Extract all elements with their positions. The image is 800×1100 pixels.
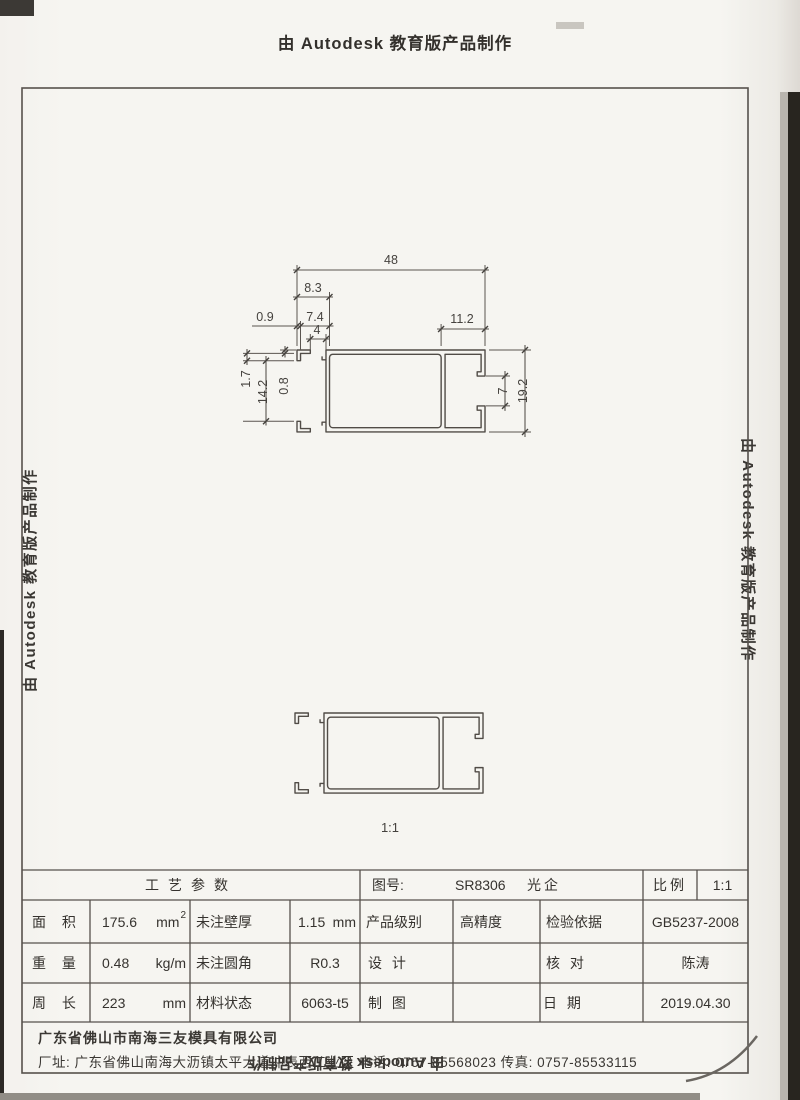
dim-4: 4	[306, 323, 328, 337]
weight-value: 0.48kg/m	[102, 943, 186, 983]
date-value: 2019.04.30	[643, 983, 748, 1022]
company-name: 广东省佛山市南海三友模具有限公司	[38, 1028, 278, 1048]
product-name: 光企	[527, 870, 587, 900]
dim-14-2: 14.2	[256, 370, 270, 414]
perimeter-label: 周 长	[32, 983, 90, 1022]
dim-19-2: 19.2	[516, 368, 530, 414]
dim-8-3: 8.3	[295, 281, 331, 295]
wall-thickness-value: 1.15mm	[298, 900, 356, 943]
area-label: 面 积	[32, 900, 90, 943]
page-curl-mark	[686, 1036, 757, 1081]
wall-thickness-label: 未注壁厚	[196, 900, 288, 943]
scale-annotation: 1:1	[370, 820, 410, 835]
company-address: 厂址: 广东省佛山南海大沥镇太平大道冲表西工业区 电话: 0757-855680…	[38, 1051, 637, 1071]
material-value: 6063-t5	[290, 983, 360, 1022]
check-label: 核 对	[546, 943, 641, 983]
design-label: 设 计	[368, 943, 451, 983]
dim-1-7: 1.7	[239, 359, 253, 399]
fillet-label: 未注圆角	[196, 943, 288, 983]
grade-value: 高精度	[460, 900, 538, 943]
profile-section-1to1	[295, 713, 483, 793]
scan-artifact-top-left	[0, 0, 34, 16]
scan-artifact-top-smudge	[556, 22, 584, 29]
profile-section-dimensioned	[297, 350, 485, 432]
inspection-label: 检验依据	[546, 900, 641, 943]
draft-label: 制 图	[368, 983, 451, 1022]
dim-7: 7	[496, 376, 510, 406]
inspection-value: GB5237-2008	[643, 900, 748, 943]
area-value: 175.6mm2	[102, 900, 186, 943]
scanned-sheet: 由 Autodesk 教育版产品制作 由 Autodesk 教育版产品制作 由 …	[0, 0, 800, 1100]
scale-field-value: 1:1	[697, 870, 748, 900]
scan-artifact-right-shadow	[780, 92, 788, 1100]
scan-artifact-bottom-strip	[0, 1093, 700, 1100]
date-label: 日 期	[543, 983, 641, 1022]
drawing-no-value: SR8306	[455, 870, 525, 900]
scan-artifact-left-strip	[0, 630, 4, 1100]
perimeter-value: 223mm	[102, 983, 186, 1022]
dim-11-2: 11.2	[442, 312, 482, 326]
fillet-value: R0.3	[290, 943, 360, 983]
dim-7-4: 7.4	[299, 310, 331, 324]
drawing-no-label: 图号:	[372, 870, 452, 900]
weight-label: 重 量	[32, 943, 90, 983]
check-value: 陈涛	[643, 943, 748, 983]
material-label: 材料状态	[196, 983, 288, 1022]
scan-artifact-right-strip	[788, 92, 800, 1100]
dim-48: 48	[371, 253, 411, 267]
dim-0-9: 0.9	[249, 310, 281, 324]
scale-field-label: 比例	[643, 870, 697, 900]
process-params-header: 工艺参数	[22, 870, 360, 900]
grade-label: 产品级别	[366, 900, 451, 943]
dim-0-8: 0.8	[277, 366, 291, 406]
